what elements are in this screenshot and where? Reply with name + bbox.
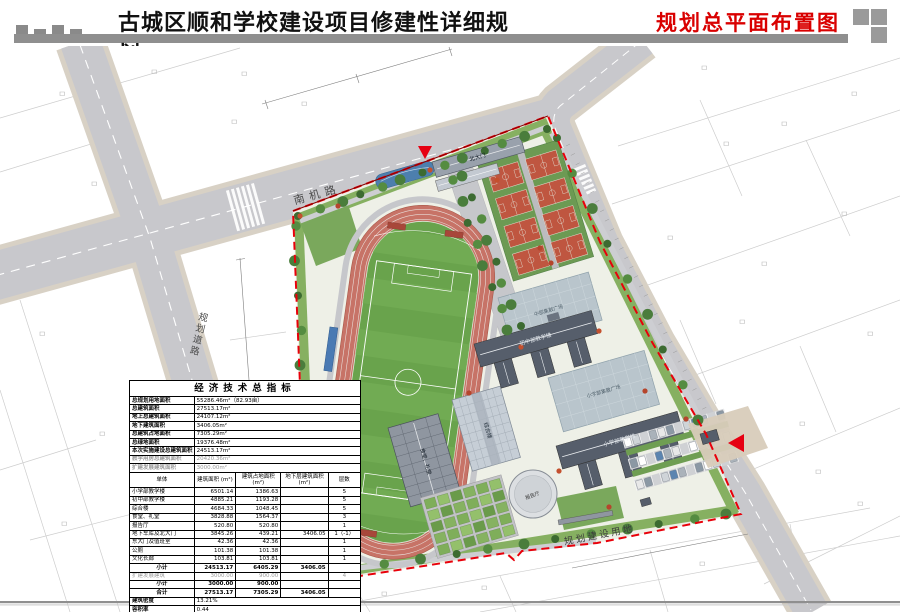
table-row: 小学部教学楼6501.141386.635 [130,488,361,496]
table-row: 综合楼4684.331048.455 [130,505,361,513]
economic-indicators-table: 经济技术总指标 总规划用地面积55286.46m²（82.93亩） 总建筑面积2… [129,380,361,612]
subtotal-row: 小计24513.176405.293406.05 [130,564,361,572]
column-header-row: 单体 建筑面积 (m²) 建筑占地面积 (m²) 地下层建筑面积 (m²) 层数 [130,472,361,488]
plan-sheet: 古城区顺和学校建设项目修建性详细规划 规划总平面布置图 [0,0,900,612]
sheet-name: 规划总平面布置图 [656,7,840,37]
total-row: 合计27513.177305.293406.05 [130,589,361,597]
subtotal-row: 小计3000.00900.00 [130,580,361,588]
table-row: 扩建发展建筑3000.00900.004 [130,572,361,580]
table-row: 公厕101.38101.381 [130,547,361,555]
table-row: 文化长廊103.81103.811 [130,555,361,563]
table-row: 报告厅520.80520.801 [130,522,361,530]
table-row: 初中部教学楼4885.211193.285 [130,496,361,504]
table-title: 经济技术总指标 [130,381,361,397]
table-row: 东大门及值班室42.3642.361 [130,538,361,546]
table-row: 地下车库及北大门3845.26439.213406.051（-1） [130,530,361,538]
table-row: 食堂、礼堂3828.881564.373 [130,513,361,521]
